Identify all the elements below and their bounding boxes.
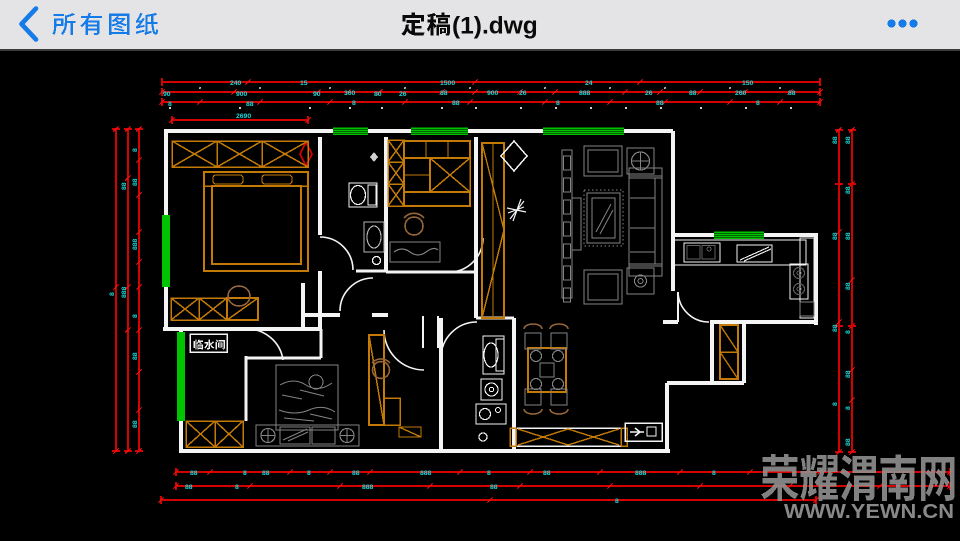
svg-text:88: 88 (132, 178, 139, 186)
svg-text:260: 260 (735, 90, 747, 97)
svg-text:888: 888 (121, 286, 128, 298)
svg-text:888: 888 (420, 470, 432, 477)
svg-text:88: 88 (788, 90, 796, 97)
svg-text:88: 88 (132, 420, 139, 428)
svg-text:88: 88 (185, 484, 193, 491)
svg-text:150: 150 (742, 80, 754, 87)
svg-text:88: 88 (121, 182, 128, 190)
svg-text:90: 90 (163, 91, 171, 98)
svg-text:26: 26 (519, 90, 527, 97)
svg-text:888: 888 (579, 90, 591, 97)
svg-text:88: 88 (490, 484, 498, 491)
svg-text:WWW.YEWN.CN: WWW.YEWN.CN (784, 500, 954, 523)
svg-text:8: 8 (352, 100, 356, 107)
svg-text:26: 26 (645, 90, 653, 97)
svg-text:8: 8 (132, 314, 139, 318)
svg-text:8: 8 (307, 470, 311, 477)
svg-text:(1).dwg: (1).dwg (452, 13, 538, 40)
svg-text:88: 88 (452, 100, 460, 107)
svg-text:8: 8 (845, 330, 852, 334)
svg-text:88: 88 (845, 186, 852, 194)
svg-text:88: 88 (832, 324, 839, 332)
svg-text:8: 8 (109, 292, 116, 296)
svg-text:8: 8 (845, 406, 852, 410)
svg-text:88: 88 (845, 136, 852, 144)
svg-text:88: 88 (352, 470, 360, 477)
svg-text:90: 90 (313, 91, 321, 98)
svg-text:888: 888 (362, 484, 374, 491)
svg-text:8: 8 (832, 402, 839, 406)
svg-text:88: 88 (246, 101, 254, 108)
svg-text:88: 88 (845, 282, 852, 290)
svg-text:88: 88 (132, 352, 139, 360)
svg-text:2690: 2690 (236, 113, 251, 120)
svg-text:88: 88 (832, 232, 839, 240)
svg-text:88: 88 (845, 438, 852, 446)
svg-text:900: 900 (487, 90, 499, 97)
svg-text:360: 360 (344, 90, 356, 97)
svg-text:88: 88 (262, 470, 270, 477)
svg-text:88: 88 (190, 470, 198, 477)
svg-text:1500: 1500 (440, 80, 455, 87)
svg-text:15: 15 (300, 80, 308, 87)
svg-text:8: 8 (487, 470, 491, 477)
svg-text:8: 8 (756, 100, 760, 107)
svg-text:888: 888 (635, 470, 647, 477)
svg-text:8: 8 (243, 470, 247, 477)
svg-text:26: 26 (399, 91, 407, 98)
svg-text:80: 80 (374, 91, 382, 98)
svg-text:8: 8 (556, 100, 560, 107)
svg-text:8: 8 (235, 484, 239, 491)
svg-text:888: 888 (132, 238, 139, 250)
svg-text:88: 88 (845, 232, 852, 240)
svg-text:24: 24 (585, 80, 593, 87)
svg-text:88: 88 (656, 100, 664, 107)
svg-text:88: 88 (832, 136, 839, 144)
svg-text:88: 88 (689, 90, 697, 97)
svg-text:88: 88 (440, 90, 448, 97)
svg-text:88: 88 (845, 370, 852, 378)
svg-text:8: 8 (132, 148, 139, 152)
svg-text:8: 8 (615, 498, 619, 505)
svg-text:8: 8 (712, 470, 716, 477)
svg-text:900: 900 (236, 91, 248, 98)
svg-text:88: 88 (543, 470, 551, 477)
svg-text:240: 240 (230, 80, 242, 87)
